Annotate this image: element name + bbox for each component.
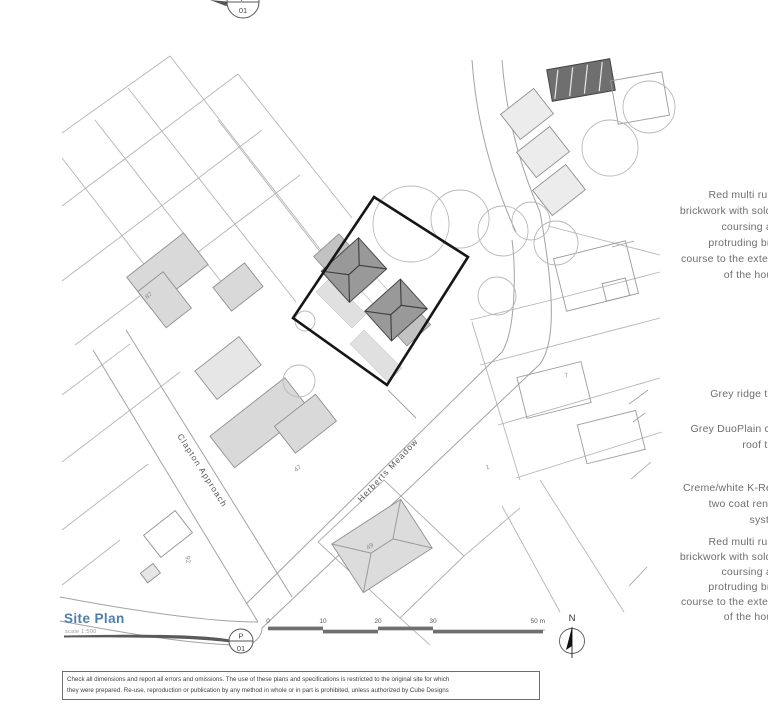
building-dark-hatched xyxy=(547,59,616,102)
site-driveway xyxy=(388,390,416,418)
bubble-letter: P xyxy=(240,0,245,3)
annotation-duoplain-tiles: Grey DuoPlain clay roof tiles xyxy=(534,421,768,453)
scale-tick: 0 xyxy=(266,618,270,625)
clapton-road-edge xyxy=(93,350,258,622)
scale-tick: 20 xyxy=(374,618,382,625)
house-number: 1 xyxy=(485,465,490,472)
roads xyxy=(60,60,551,645)
building-87 xyxy=(127,233,223,328)
annotation-line: of the house xyxy=(534,610,768,625)
annotation-line: protruding brick xyxy=(534,580,768,595)
annotation-line: Grey DuoPlain clay xyxy=(534,421,768,437)
road-label-herberts: Herberts Meadow xyxy=(355,436,420,504)
proposed-site xyxy=(293,197,468,385)
annotation-line: Red multi rustic xyxy=(534,535,768,550)
annotation-line: brickwork with soldier xyxy=(534,203,768,219)
annotation-line: of the house xyxy=(534,267,768,283)
site-plan-sheet: Clapton Approach Herberts Meadow xyxy=(0,0,768,717)
building-49 xyxy=(332,499,432,592)
annotation-line: two coat render xyxy=(534,496,768,512)
building xyxy=(195,337,261,400)
annotation-line: protruding brick xyxy=(534,235,768,251)
annotation-line: Red multi rustic xyxy=(534,187,768,203)
building-92 xyxy=(123,511,200,583)
annotation-line: roof tiles xyxy=(534,437,768,453)
annotation-line: Creme/white K-Rend xyxy=(534,480,768,496)
annotation-line: course to the exterior xyxy=(534,595,768,610)
annotation-line: system xyxy=(534,512,768,528)
scale-bar: 0 10 20 30 50 m xyxy=(266,618,545,633)
house-number: 92 xyxy=(183,556,191,565)
disclaimer-box: Check all dimensions and report all erro… xyxy=(62,671,540,700)
bubble-number: 01 xyxy=(239,6,247,15)
annotation-brickwork-top: Red multi rustic brickwork with soldier … xyxy=(534,187,768,283)
top-road-edge xyxy=(472,60,516,232)
annotation-line: coursing and xyxy=(534,219,768,235)
disclaimer-line: they were prepared. Re-use, reproduction… xyxy=(67,686,535,697)
bubble-letter: P xyxy=(238,632,243,641)
drawing-title: Site Plan xyxy=(64,611,125,626)
annotation-ridge-tiles: Grey ridge tiles xyxy=(534,386,768,402)
annotation-line: course to the exterior xyxy=(534,251,768,267)
drawing-bubble-top: P 01 xyxy=(210,0,259,18)
annotation-line: brickwork with soldier xyxy=(534,550,768,565)
bubble-number: 01 xyxy=(237,644,245,653)
building-outline xyxy=(611,72,670,124)
house-number: 7 xyxy=(564,373,569,380)
annotation-krend-render: Creme/white K-Rend two coat render syste… xyxy=(534,480,768,528)
annotation-line: Grey ridge tiles xyxy=(534,386,768,402)
annotation-line: coursing and xyxy=(534,565,768,580)
annotation-brickwork-bottom: Red multi rustic brickwork with soldier … xyxy=(534,535,768,625)
disclaimer-line: Check all dimensions and report all erro… xyxy=(67,675,535,686)
building xyxy=(213,263,263,311)
scale-tick: 30 xyxy=(429,618,437,625)
scale-tick: 10 xyxy=(319,618,327,625)
house-number: 47 xyxy=(293,464,303,474)
house-numbers: 87 47 92 49 1 7 xyxy=(144,291,570,565)
scale-note: scale 1:500 xyxy=(65,629,96,635)
